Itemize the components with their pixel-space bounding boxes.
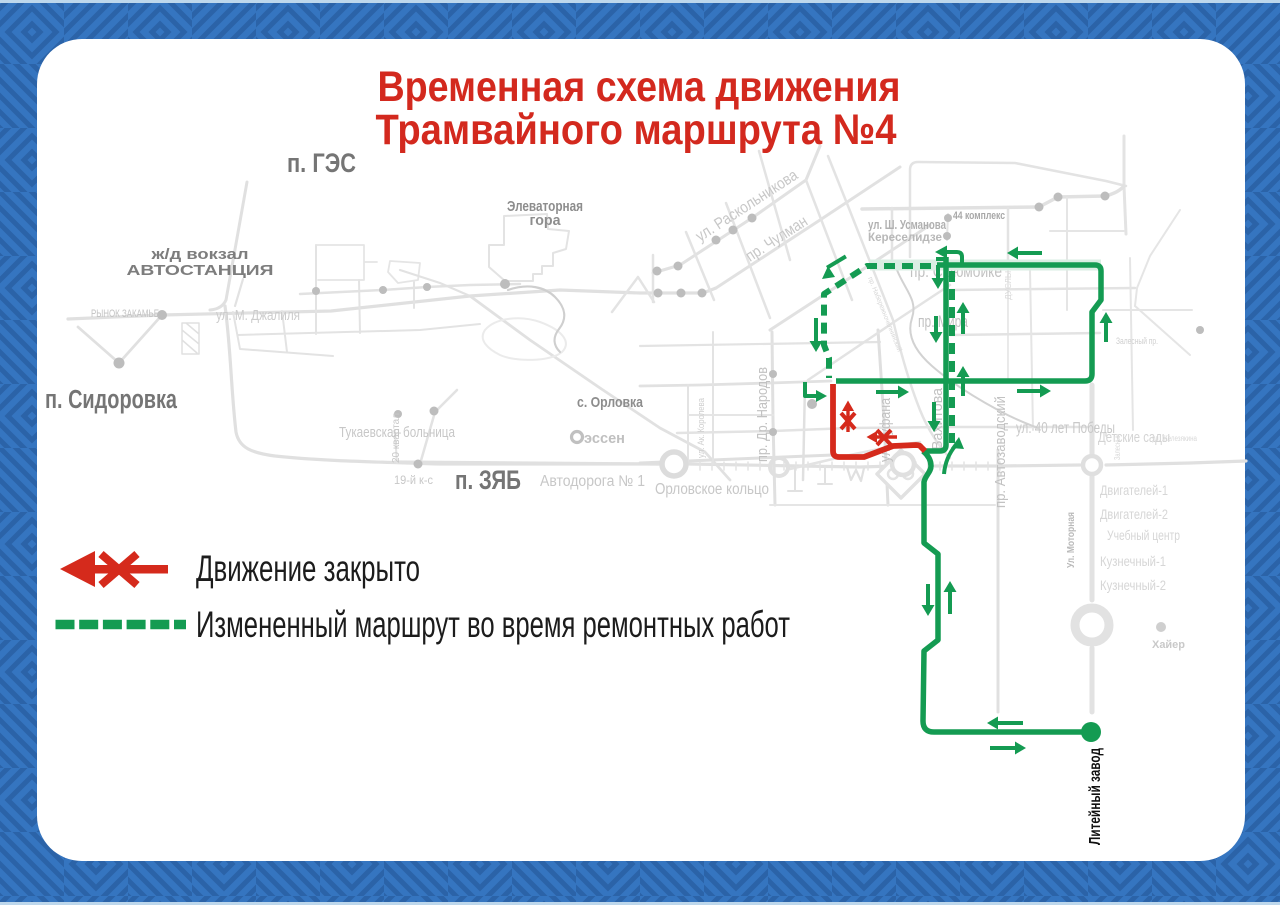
svg-text:ул. Ак. Королева: ул. Ак. Королева xyxy=(696,397,707,458)
svg-text:АВТОСТАНЦИЯ: АВТОСТАНЦИЯ xyxy=(127,263,274,279)
svg-text:19-й к-с: 19-й к-с xyxy=(394,473,433,487)
svg-text:Кереселидзе: Кереселидзе xyxy=(868,232,942,244)
svg-text:Залесный пр.: Залесный пр. xyxy=(1116,336,1158,346)
svg-text:РЫНОК ЗАКАМЬЕ: РЫНОК ЗАКАМЬЕ xyxy=(91,308,159,320)
svg-text:Двигателей-1: Двигателей-1 xyxy=(1100,482,1168,498)
svg-text:Движение закрыто: Движение закрыто xyxy=(196,548,420,589)
svg-text:ул. М. Джалиля: ул. М. Джалиля xyxy=(216,307,300,324)
svg-text:44 комплекс: 44 комплекс xyxy=(953,210,1005,222)
svg-text:Литейный завод: Литейный завод xyxy=(1087,748,1104,845)
svg-text:Двигателей-2: Двигателей-2 xyxy=(1100,506,1168,522)
svg-text:п. ГЭС: п. ГЭС xyxy=(287,148,356,178)
svg-text:ж/д вокзал: ж/д вокзал xyxy=(150,247,248,263)
svg-text:Временная схема движения: Временная схема движения xyxy=(378,63,901,111)
svg-text:Измененный маршрут во время ре: Измененный маршрут во время ремонтных ра… xyxy=(196,604,790,645)
svg-text:Кузнечный-1: Кузнечный-1 xyxy=(1100,553,1166,569)
svg-text:20 квартал: 20 квартал xyxy=(391,413,402,463)
svg-text:Учебный центр: Учебный центр xyxy=(1107,527,1180,543)
svg-text:эссен: эссен xyxy=(584,431,625,447)
svg-text:ул. Железякина: ул. Железякина xyxy=(1152,434,1197,443)
svg-text:пр. Др. Народов: пр. Др. Народов xyxy=(755,367,771,462)
svg-text:Залесный: Залесный xyxy=(1113,434,1122,460)
svg-text:п. Сидоровка: п. Сидоровка xyxy=(45,386,178,414)
svg-text:с. Орловка: с. Орловка xyxy=(577,394,644,411)
svg-text:Кузнечный-2: Кузнечный-2 xyxy=(1100,577,1166,593)
svg-text:пр. Автозаводский: пр. Автозаводский xyxy=(992,396,1009,508)
svg-text:п. ЗЯБ: п. ЗЯБ xyxy=(455,465,521,495)
svg-text:Хайер: Хайер xyxy=(1152,639,1185,651)
svg-text:Орловское кольцо: Орловское кольцо xyxy=(655,481,769,498)
svg-text:ул. Ш. Усманова: ул. Ш. Усманова xyxy=(868,218,947,232)
svg-text:Трамвайного маршрута №4: Трамвайного маршрута №4 xyxy=(376,106,897,154)
svg-text:Автодорога № 1: Автодорога № 1 xyxy=(540,473,645,490)
svg-text:Ул. Моторная: Ул. Моторная xyxy=(1066,512,1077,568)
svg-text:гора: гора xyxy=(530,213,562,229)
svg-text:ДУСЛЫК: ДУСЛЫК xyxy=(1004,266,1013,300)
